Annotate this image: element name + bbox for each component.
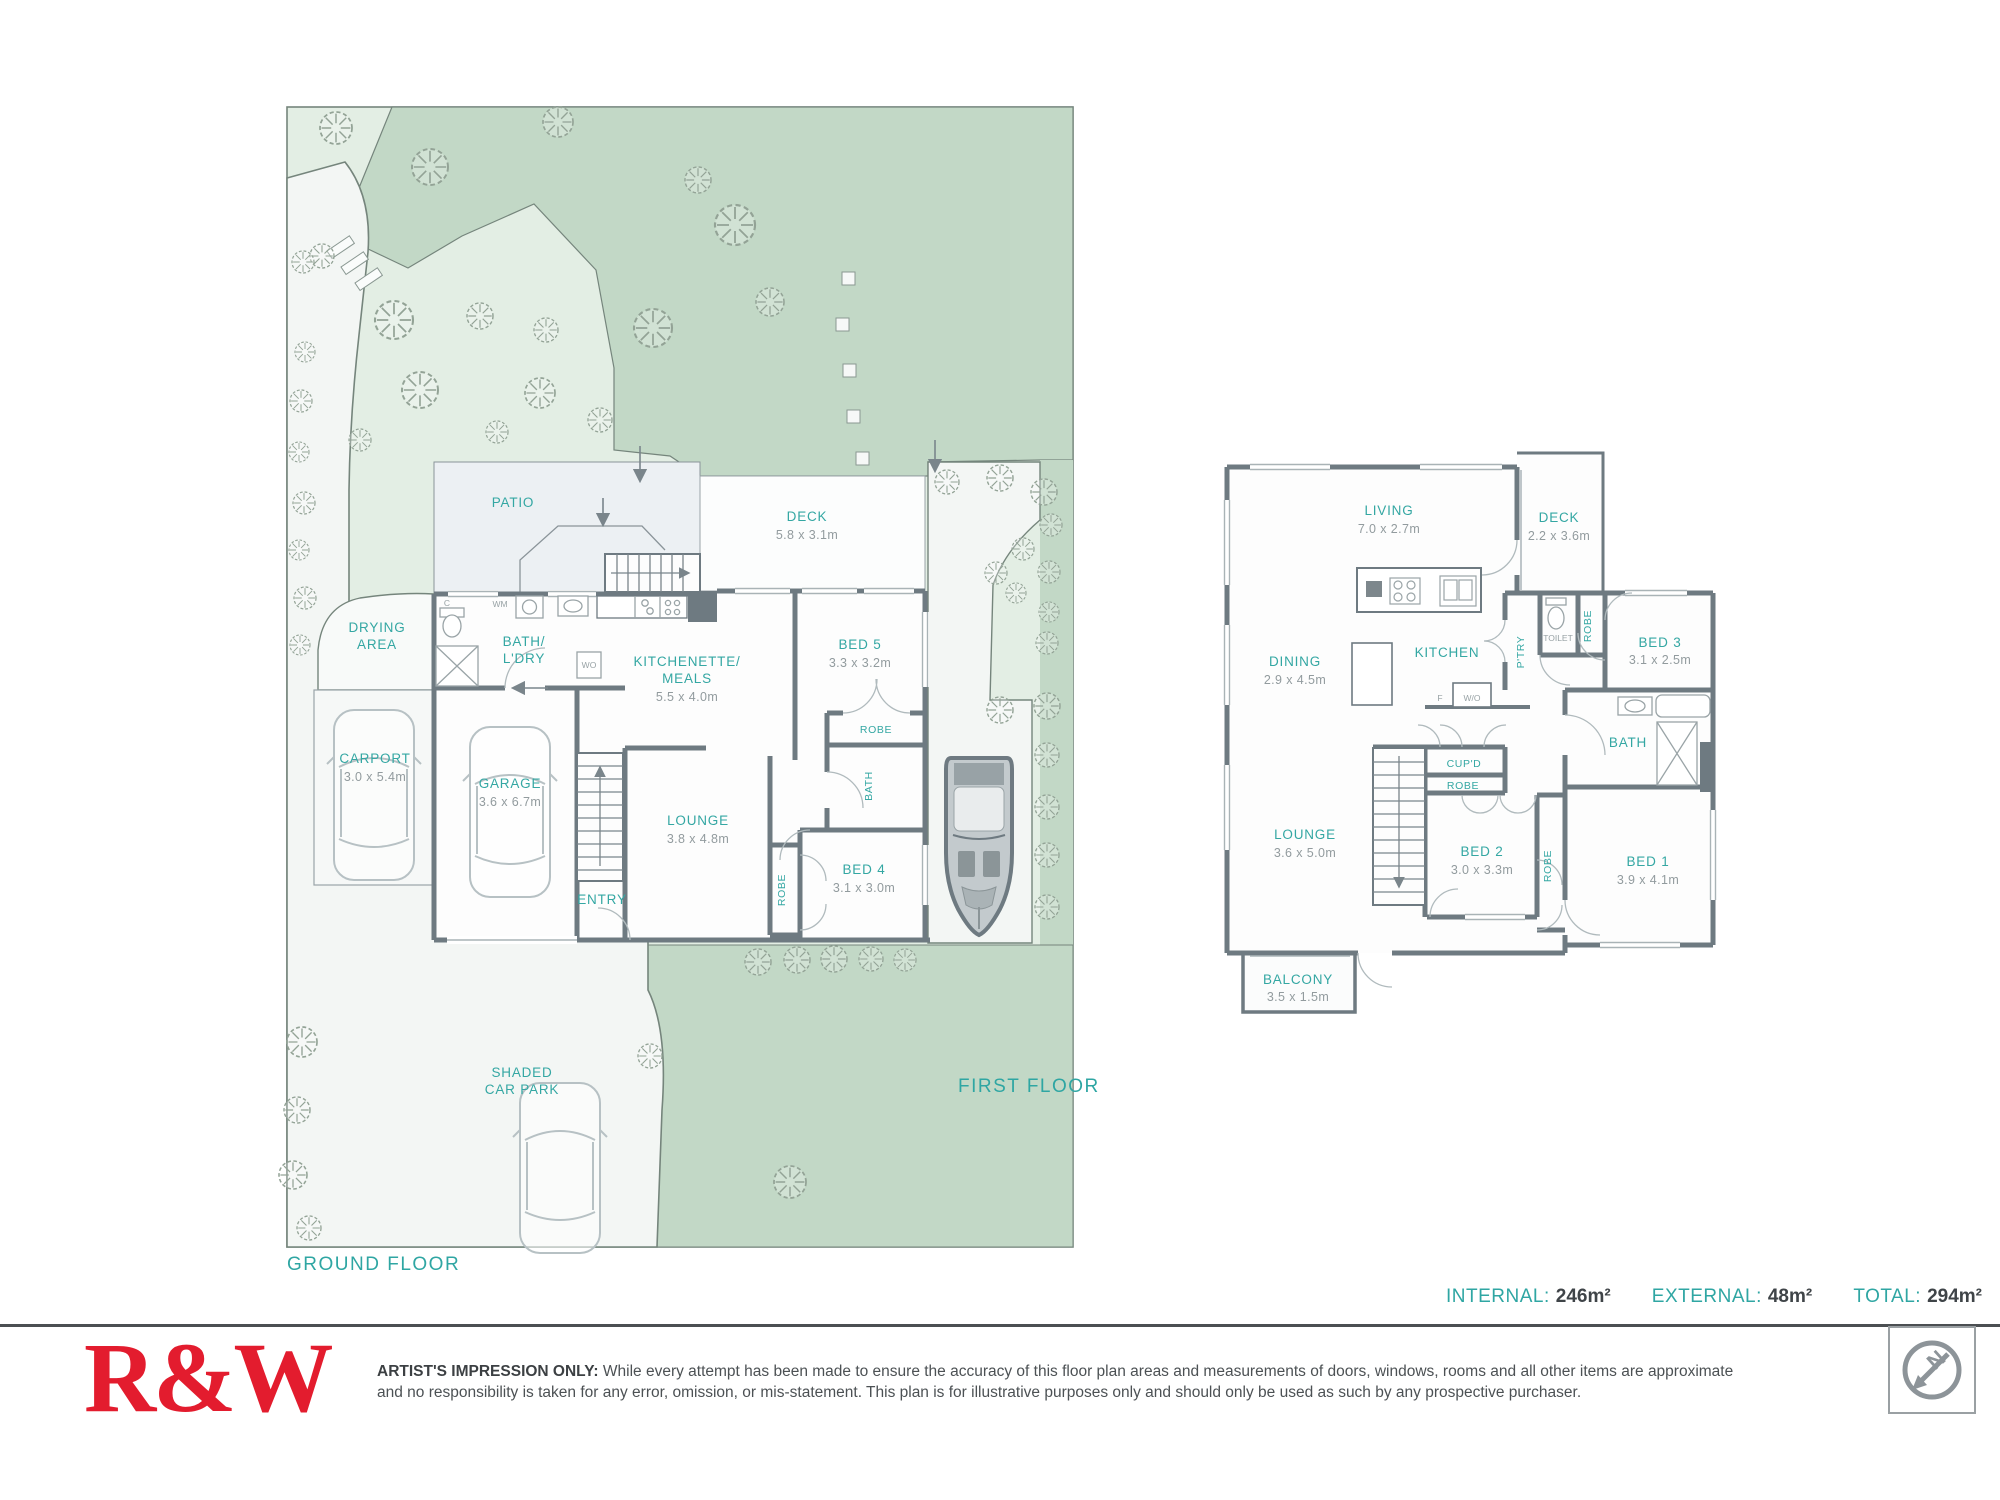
wall-oven-label: W/O: [1464, 693, 1481, 703]
balcony-dims: 3.5 x 1.5m: [1267, 990, 1329, 1004]
total-area: TOTAL:294m²: [1853, 1286, 1982, 1308]
robe-hall-label: ROBE: [1447, 780, 1479, 792]
kitchenette-label-2: MEALS: [662, 671, 712, 686]
carport-dims: 3.0 x 5.4m: [344, 770, 406, 784]
external-area: EXTERNAL:48m²: [1652, 1286, 1812, 1308]
bed3-dims: 3.1 x 2.5m: [1629, 653, 1691, 667]
bed2-dims: 3.0 x 3.3m: [1451, 863, 1513, 877]
deck-dims: 5.8 x 3.1m: [776, 528, 838, 542]
deck-label: DECK: [787, 509, 828, 524]
c-label: C: [444, 598, 450, 608]
garage-dims: 3.6 x 6.7m: [479, 795, 541, 809]
first-lounge-label: LOUNGE: [1274, 827, 1336, 842]
bath-small-label: BATH: [863, 771, 875, 801]
floorplan-sheet: PATIO DECK 5.8 x 3.1m DRYING AREA BATH/ …: [0, 0, 2000, 1500]
first-lounge-dims: 3.6 x 5.0m: [1274, 846, 1336, 860]
drying-area-label-2: AREA: [357, 637, 397, 652]
shaded-carpark-label-1: SHADED: [491, 1065, 552, 1080]
lounge-dims: 3.8 x 4.8m: [667, 832, 729, 846]
garage-label: GARAGE: [479, 776, 542, 791]
patio-stairs: [605, 554, 700, 592]
bed2-label: BED 2: [1460, 844, 1503, 859]
robe-toilet-label: ROBE: [1582, 610, 1594, 642]
bed4-label: BED 4: [842, 862, 885, 877]
bed3-label: BED 3: [1638, 635, 1681, 650]
toilet-label: TOILET: [1543, 633, 1573, 643]
bed5-dims: 3.3 x 3.2m: [829, 656, 891, 670]
agency-logo: R&W: [84, 1330, 331, 1425]
first-stairs: [1373, 748, 1425, 905]
bath-ldry-label-2: L'DRY: [503, 651, 545, 666]
dining-label: DINING: [1269, 654, 1321, 669]
bath-ldry-label-1: BATH/: [503, 634, 546, 649]
living-label: LIVING: [1364, 503, 1413, 518]
bed4-dims: 3.1 x 3.0m: [833, 881, 895, 895]
kitchenette-label-1: KITCHENETTE/: [633, 654, 740, 669]
fridge-label: F: [1437, 693, 1442, 703]
cupboard-label: CUP'D: [1447, 758, 1482, 770]
robe-bed5-label: ROBE: [860, 724, 892, 736]
entry-stairs: [577, 753, 623, 881]
kitchen-label: KITCHEN: [1415, 645, 1480, 660]
bed1-dims: 3.9 x 4.1m: [1617, 873, 1679, 887]
living-dims: 7.0 x 2.7m: [1358, 522, 1420, 536]
patio-label: PATIO: [492, 495, 535, 510]
lounge-label: LOUNGE: [667, 813, 729, 828]
first-deck-label: DECK: [1539, 510, 1580, 525]
ground-floor-title: GROUND FLOOR: [287, 1254, 460, 1276]
bed1-label: BED 1: [1626, 854, 1669, 869]
parked-car: [513, 1083, 607, 1253]
robe-bed4-label: ROBE: [776, 874, 788, 906]
balcony-label: BALCONY: [1263, 972, 1333, 987]
robe-bed1-label: ROBE: [1542, 850, 1554, 882]
disclaimer-text: ARTIST'S IMPRESSION ONLY: While every at…: [377, 1362, 1762, 1403]
bed5-label: BED 5: [838, 637, 881, 652]
carport-car: [327, 710, 421, 880]
first-bath-label: BATH: [1609, 735, 1647, 750]
boat: [946, 758, 1012, 935]
area-totals: INTERNAL:246m² EXTERNAL:48m² TOTAL:294m²: [1446, 1286, 1982, 1308]
compass-icon: N: [1888, 1326, 1976, 1414]
wm-label: WM: [492, 599, 507, 609]
pantry-label: P'TRY: [1515, 636, 1527, 669]
carport-label: CARPORT: [339, 751, 410, 766]
dining-dims: 2.9 x 4.5m: [1264, 673, 1326, 687]
internal-area: INTERNAL:246m²: [1446, 1286, 1611, 1308]
wall-pier: [688, 591, 717, 622]
wo-label: WO: [582, 660, 597, 670]
disclaimer-lead: ARTIST'S IMPRESSION ONLY:: [377, 1363, 599, 1380]
shaded-carpark-label-2: CAR PARK: [485, 1082, 559, 1097]
first-deck-dims: 2.2 x 3.6m: [1528, 529, 1590, 543]
first-floor-plan: LIVING 7.0 x 2.7m DECK 2.2 x 3.6m DINING…: [1215, 430, 1735, 1030]
entry-label: ENTRY: [577, 892, 627, 907]
kitchenette-dims: 5.5 x 4.0m: [656, 690, 718, 704]
first-floor-title: FIRST FLOOR: [958, 1076, 1100, 1098]
garage-car: [463, 727, 557, 897]
drying-area-label-1: DRYING: [348, 620, 405, 635]
